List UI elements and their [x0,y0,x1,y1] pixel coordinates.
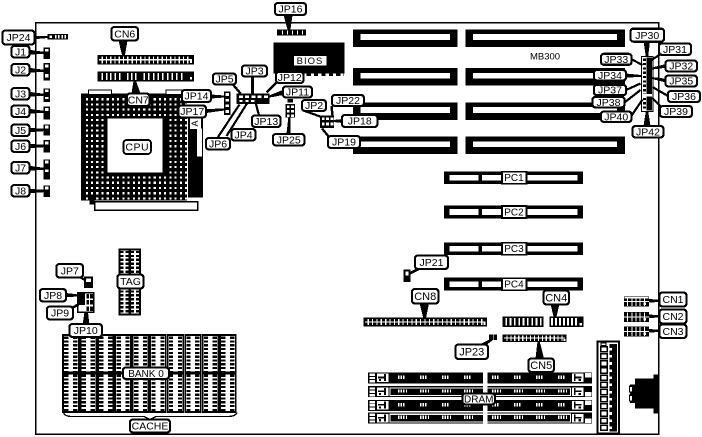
svg-text:JP33: JP33 [604,54,628,66]
svg-text:JP37: JP37 [598,85,622,97]
svg-text:CN3: CN3 [662,326,683,338]
svg-text:J8: J8 [15,185,26,197]
svg-text:A: A [190,120,200,126]
svg-text:MB300: MB300 [530,52,560,63]
svg-text:TAG: TAG [120,276,141,288]
svg-text:PC1: PC1 [504,173,524,184]
svg-text:JP38: JP38 [597,97,621,109]
svg-text:JP39: JP39 [664,106,688,118]
svg-text:JP2: JP2 [305,100,323,112]
svg-text:CACHE: CACHE [132,421,169,433]
svg-text:JP14: JP14 [185,91,209,103]
svg-text:JP30: JP30 [635,30,659,42]
svg-text:JP19: JP19 [332,137,356,149]
svg-text:CN8: CN8 [414,291,436,303]
svg-text:JP42: JP42 [636,126,660,138]
svg-text:JP13: JP13 [254,116,278,128]
svg-text:BIOS: BIOS [297,56,324,67]
svg-text:JP4: JP4 [234,129,252,141]
svg-text:BANK 0: BANK 0 [128,369,164,380]
svg-text:JP11: JP11 [286,87,309,99]
svg-text:CN7: CN7 [128,94,149,106]
svg-text:J2: J2 [15,64,26,76]
svg-text:J7: J7 [15,162,26,174]
svg-text:JP31: JP31 [663,44,687,56]
svg-text:J4: J4 [15,106,26,118]
svg-text:CN1: CN1 [662,294,683,306]
svg-text:JP16: JP16 [279,4,303,16]
svg-text:JP40: JP40 [604,111,628,123]
svg-text:JP3: JP3 [245,66,263,78]
svg-text:JP9: JP9 [51,308,69,320]
svg-text:CN6: CN6 [114,28,135,40]
svg-text:JP12: JP12 [278,72,302,84]
svg-text:J5: J5 [15,125,26,137]
svg-text:JP17: JP17 [180,106,204,118]
svg-text:JP8: JP8 [44,290,62,302]
svg-text:PC3: PC3 [504,244,524,255]
svg-text:JP10: JP10 [74,325,98,337]
svg-text:PC4: PC4 [504,280,524,291]
svg-text:J3: J3 [15,88,26,100]
svg-text:JP7: JP7 [61,265,79,277]
svg-text:JP36: JP36 [672,91,696,103]
svg-text:JP35: JP35 [669,76,693,88]
svg-text:JP18: JP18 [348,116,372,128]
svg-text:JP22: JP22 [336,95,360,107]
svg-text:CN2: CN2 [662,311,683,323]
svg-text:JP34: JP34 [598,70,622,82]
svg-text:JP6: JP6 [209,138,227,150]
svg-text:JP21: JP21 [420,257,444,269]
svg-text:CPU: CPU [125,142,149,154]
svg-text:CN5: CN5 [530,360,552,372]
svg-text:JP5: JP5 [215,74,233,86]
svg-text:PC2: PC2 [504,207,524,218]
svg-text:JP23: JP23 [459,347,484,359]
svg-text:JP32: JP32 [669,61,693,73]
svg-text:JP24: JP24 [7,32,31,44]
svg-text:CN4: CN4 [545,292,567,304]
svg-text:J6: J6 [15,141,26,153]
svg-text:JP25: JP25 [277,134,301,146]
svg-text:DRAM: DRAM [464,395,493,406]
svg-text:J1: J1 [15,46,26,58]
